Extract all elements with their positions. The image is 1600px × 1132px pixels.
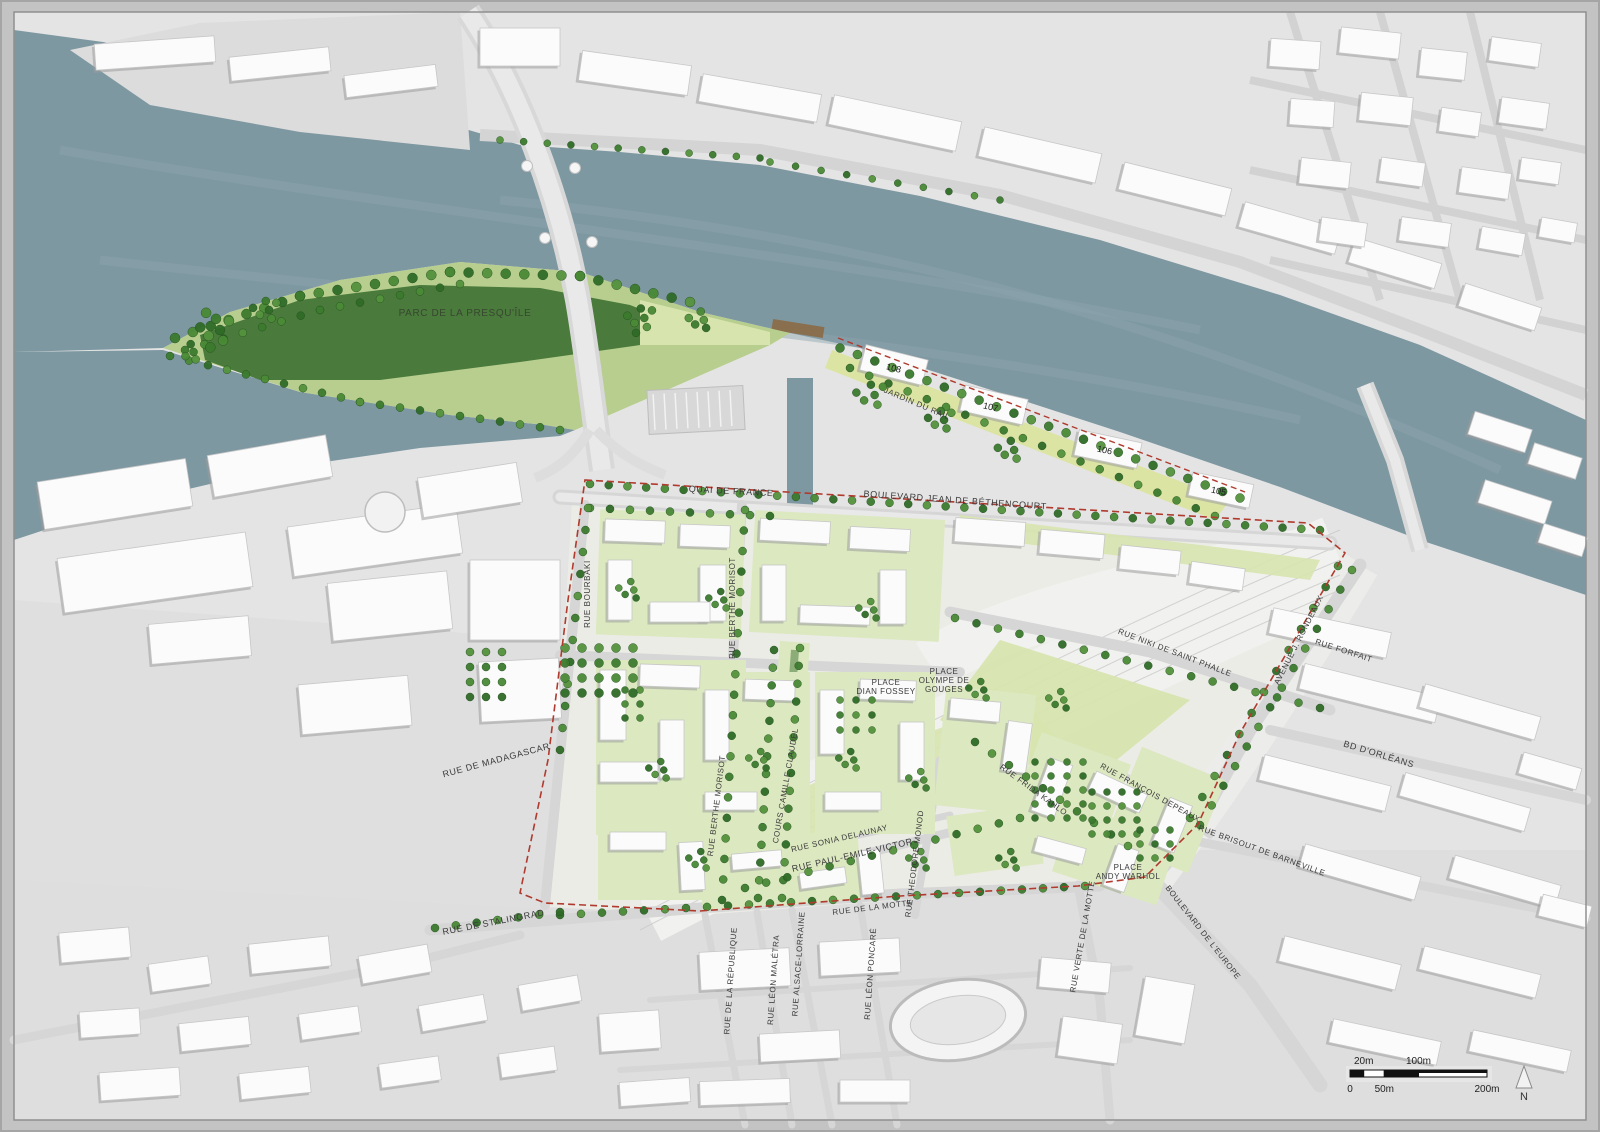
- scale-label-top: 20m: [1354, 1056, 1373, 1067]
- street-label: RUE BERTHE MORISOT: [728, 557, 737, 659]
- masterplan-map-canvas: PARC DE LA PRESQU'ÎLEJARDIN DU RAILQUAI …: [0, 0, 1600, 1132]
- scale-label-bottom: 50m: [1375, 1084, 1394, 1095]
- street-label: RUE BOURBAKI: [583, 560, 592, 628]
- scale-label-bottom: 0: [1347, 1084, 1353, 1095]
- scale-label-top: 100m: [1406, 1056, 1431, 1067]
- street-label: PARC DE LA PRESQU'ÎLE: [399, 306, 532, 319]
- masterplan-page: PARC DE LA PRESQU'ÎLEJARDIN DU RAILQUAI …: [0, 0, 1600, 1132]
- scale-label-bottom: 200m: [1474, 1084, 1499, 1095]
- north-letter: N: [1520, 1091, 1528, 1103]
